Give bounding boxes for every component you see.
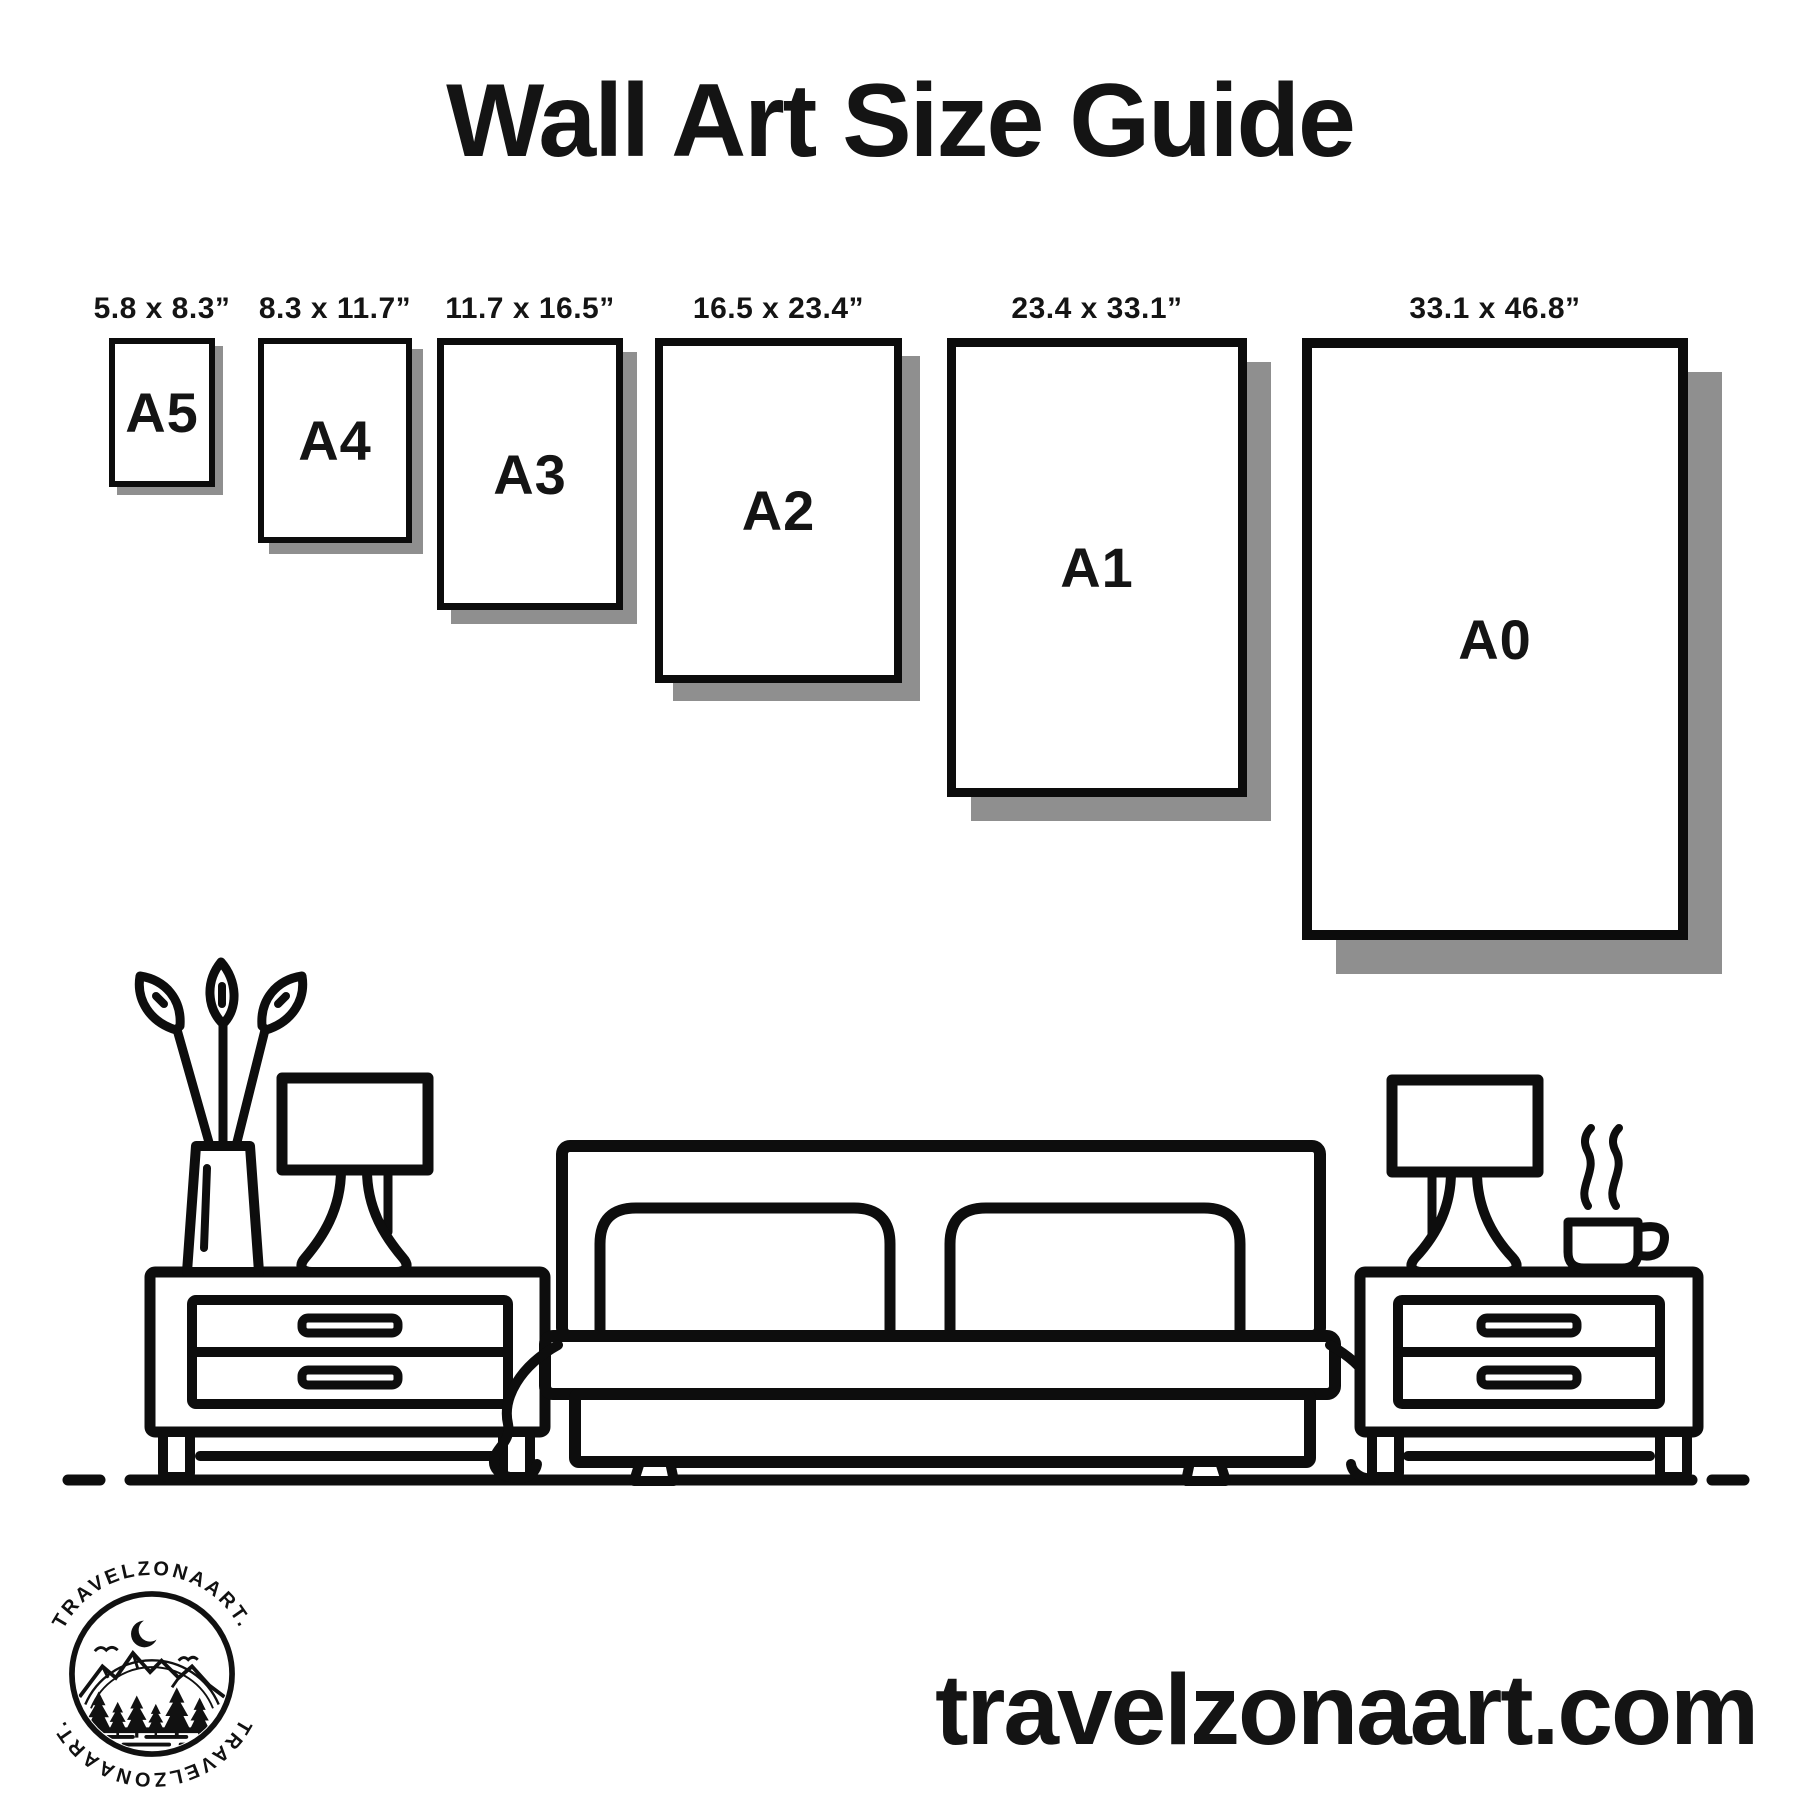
- website-url: travelzonaart.com: [935, 1653, 1757, 1768]
- bedroom-scene: [0, 0, 1800, 1800]
- table-lamp-icon: [1392, 1080, 1538, 1272]
- nightstand-icon: [1360, 1272, 1698, 1477]
- bed-icon: [494, 1146, 1394, 1481]
- travelzonaart-logo: TRAVELZONAART. TRAVELZONAART.: [30, 1552, 274, 1796]
- coffee-cup-icon: [1540, 1128, 1668, 1272]
- nightstand-icon: [150, 1272, 545, 1477]
- wall-art-size-guide-poster: Wall Art Size Guide 5.8 x 8.3” A5 8.3 x …: [0, 0, 1800, 1800]
- table-lamp-icon: [282, 1078, 428, 1272]
- steam-icon: [1584, 1128, 1619, 1206]
